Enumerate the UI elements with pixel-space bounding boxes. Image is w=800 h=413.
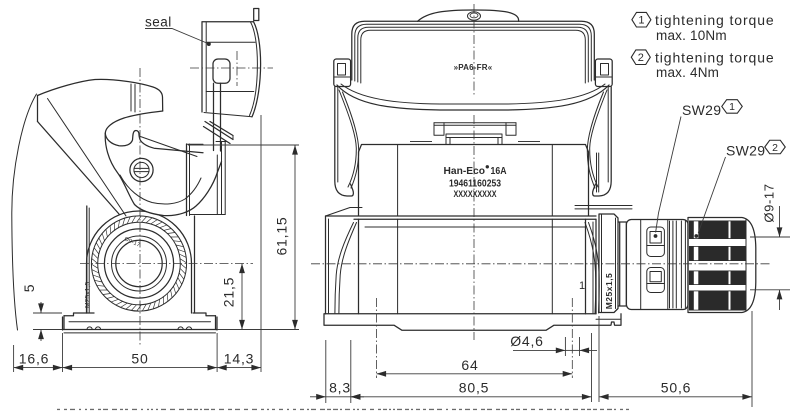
svg-text:21,5: 21,5 [221, 277, 237, 307]
svg-text:»PA6-FR«: »PA6-FR« [454, 63, 493, 72]
svg-text:61,15: 61,15 [274, 216, 290, 255]
svg-text:max. 10Nm: max. 10Nm [656, 28, 727, 43]
svg-text:2: 2 [772, 142, 778, 154]
svg-text:16,6: 16,6 [19, 351, 49, 367]
svg-text:50,6: 50,6 [661, 380, 691, 396]
svg-text:19461160253: 19461160253 [449, 179, 501, 190]
svg-text:Ø4,6: Ø4,6 [510, 333, 544, 349]
svg-text:16A: 16A [491, 165, 507, 177]
svg-text:XXXXXXXXX: XXXXXXXXX [454, 189, 497, 199]
svg-text:1: 1 [579, 280, 585, 292]
svg-text:SW29: SW29 [682, 102, 721, 118]
svg-text:80,5: 80,5 [459, 380, 489, 396]
svg-text:Han-Eco: Han-Eco [444, 165, 486, 177]
svg-text:seal: seal [145, 15, 172, 30]
svg-text:tightening torque: tightening torque [655, 50, 775, 66]
svg-text:tightening torque: tightening torque [655, 12, 775, 28]
svg-text:max. 4Nm: max. 4Nm [656, 65, 719, 80]
svg-text:M25x1,5: M25x1,5 [604, 273, 614, 310]
svg-text:5: 5 [21, 284, 37, 293]
svg-text:8,3: 8,3 [329, 380, 351, 396]
svg-text:1: 1 [638, 15, 644, 27]
svg-text:14,3: 14,3 [224, 351, 254, 367]
svg-text:SW29: SW29 [726, 143, 765, 159]
svg-text:Ø9-17: Ø9-17 [762, 183, 777, 222]
svg-text:50: 50 [131, 351, 148, 367]
svg-text:2: 2 [638, 52, 644, 64]
svg-text:1: 1 [729, 101, 735, 113]
svg-text:M25x1,5: M25x1,5 [85, 281, 92, 308]
svg-text:64: 64 [461, 357, 478, 373]
